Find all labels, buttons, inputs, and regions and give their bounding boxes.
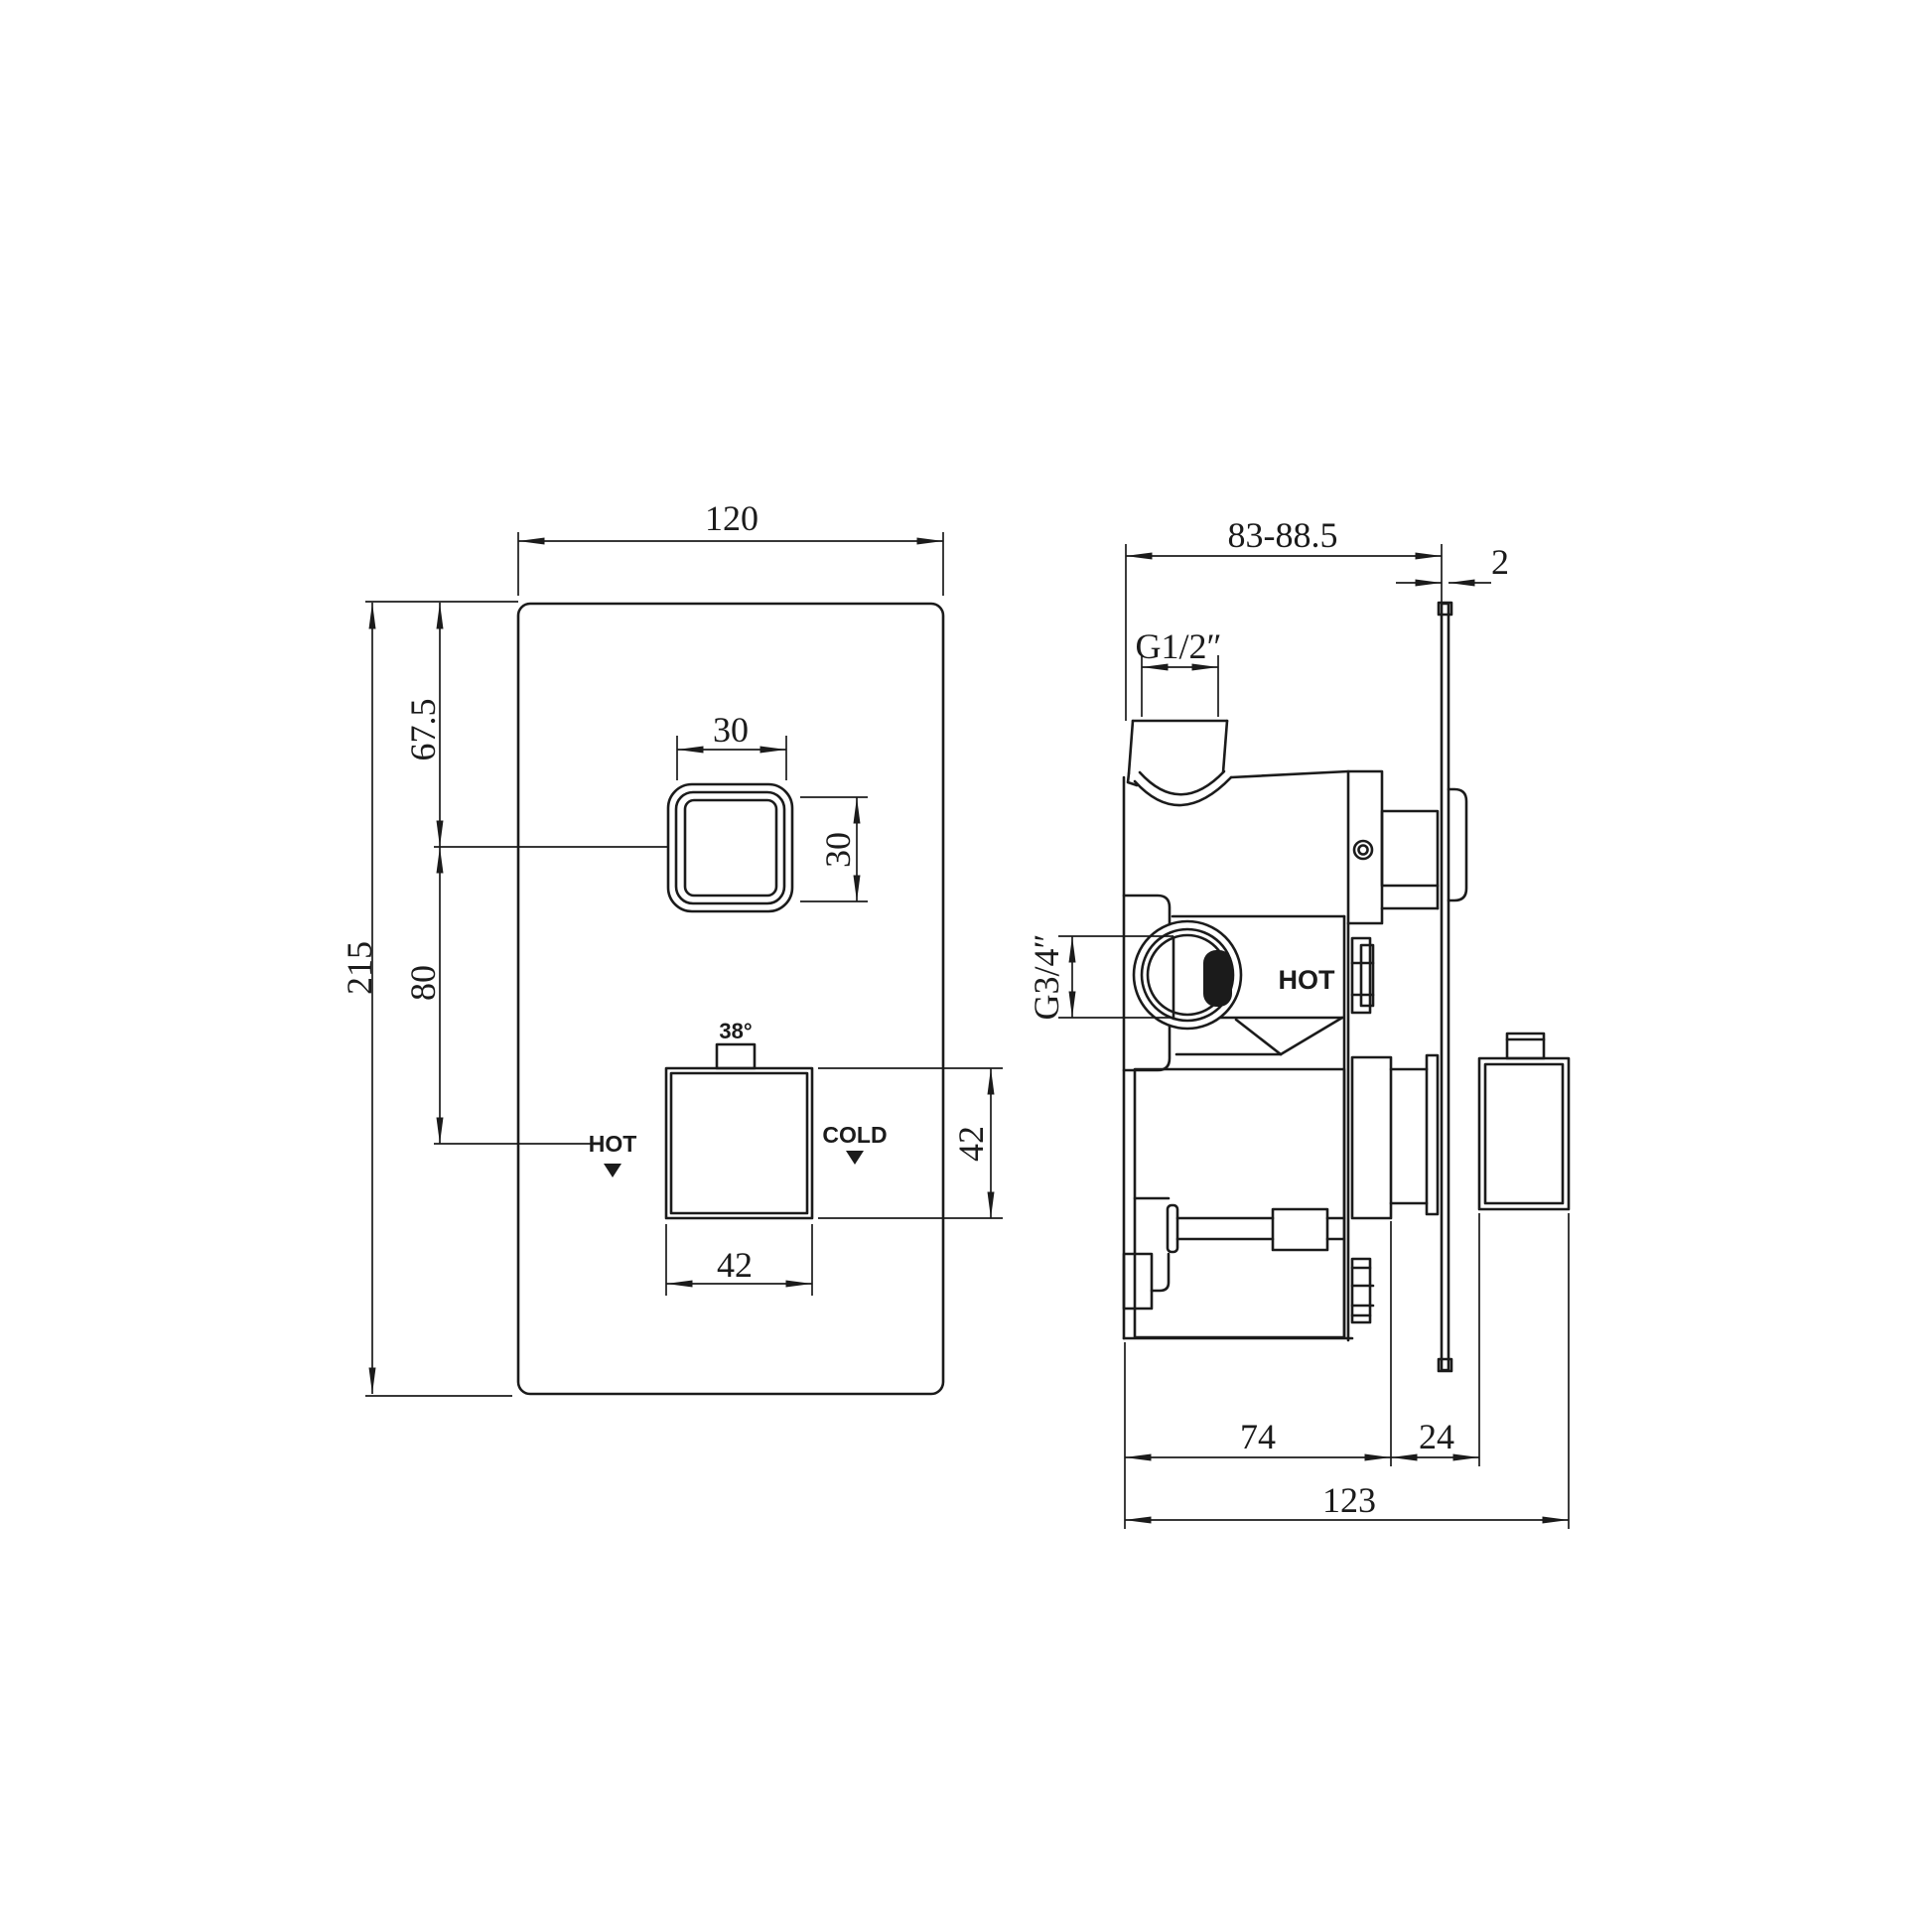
inlet-thread-label: G1/2″ xyxy=(1136,626,1222,666)
side-diverter-knob xyxy=(1479,1034,1569,1209)
dim-total-depth: 123 xyxy=(1322,1480,1376,1520)
side-wall-plate xyxy=(1439,603,1451,1371)
outlet-thread-label: G3/4″ xyxy=(1027,934,1066,1021)
temp-stop-label: 38° xyxy=(719,1019,752,1043)
hot-arrow-icon xyxy=(604,1164,621,1177)
front-diverter-handle xyxy=(666,1044,812,1218)
dim-button-height: 30 xyxy=(818,832,858,868)
side-temp-button xyxy=(1449,789,1466,900)
side-dimensions xyxy=(1058,544,1569,1529)
side-view xyxy=(1124,603,1569,1371)
side-inlet-pipe xyxy=(1128,721,1231,805)
dim-knob-depth: 24 xyxy=(1419,1417,1454,1456)
dim-button-spacing: 80 xyxy=(403,965,443,1001)
dim-plate-width: 120 xyxy=(705,498,759,538)
front-temp-button xyxy=(668,784,792,911)
port-bore-dark xyxy=(1203,950,1232,1007)
dim-plate-thickness: 2 xyxy=(1491,542,1509,582)
shower-valve-technical-drawing: 120 215 67.5 80 30 30 42 42 38° HOT COLD xyxy=(0,0,1932,1932)
dim-plate-height: 215 xyxy=(340,941,379,995)
front-38deg-index-tab xyxy=(717,1044,755,1068)
front-dimensions xyxy=(365,532,1003,1396)
dim-handle-height: 42 xyxy=(951,1126,991,1162)
dim-depth-range: 83-88.5 xyxy=(1228,515,1338,555)
side-valve-body xyxy=(1124,771,1352,1340)
dim-button-offset-top: 67.5 xyxy=(403,699,443,761)
side-outlet-port xyxy=(1134,921,1241,1029)
cold-arrow-icon xyxy=(846,1151,864,1165)
dim-body-depth: 74 xyxy=(1240,1417,1276,1456)
side-hot-label: HOT xyxy=(1279,965,1336,995)
front-hot-label: HOT xyxy=(589,1131,637,1157)
drawing-canvas: 120 215 67.5 80 30 30 42 42 38° HOT COLD xyxy=(0,0,1932,1932)
dim-handle-width: 42 xyxy=(717,1245,753,1285)
side-upper-cartridge xyxy=(1348,771,1438,1013)
front-cold-label: COLD xyxy=(822,1122,887,1148)
dim-button-width: 30 xyxy=(713,710,749,750)
